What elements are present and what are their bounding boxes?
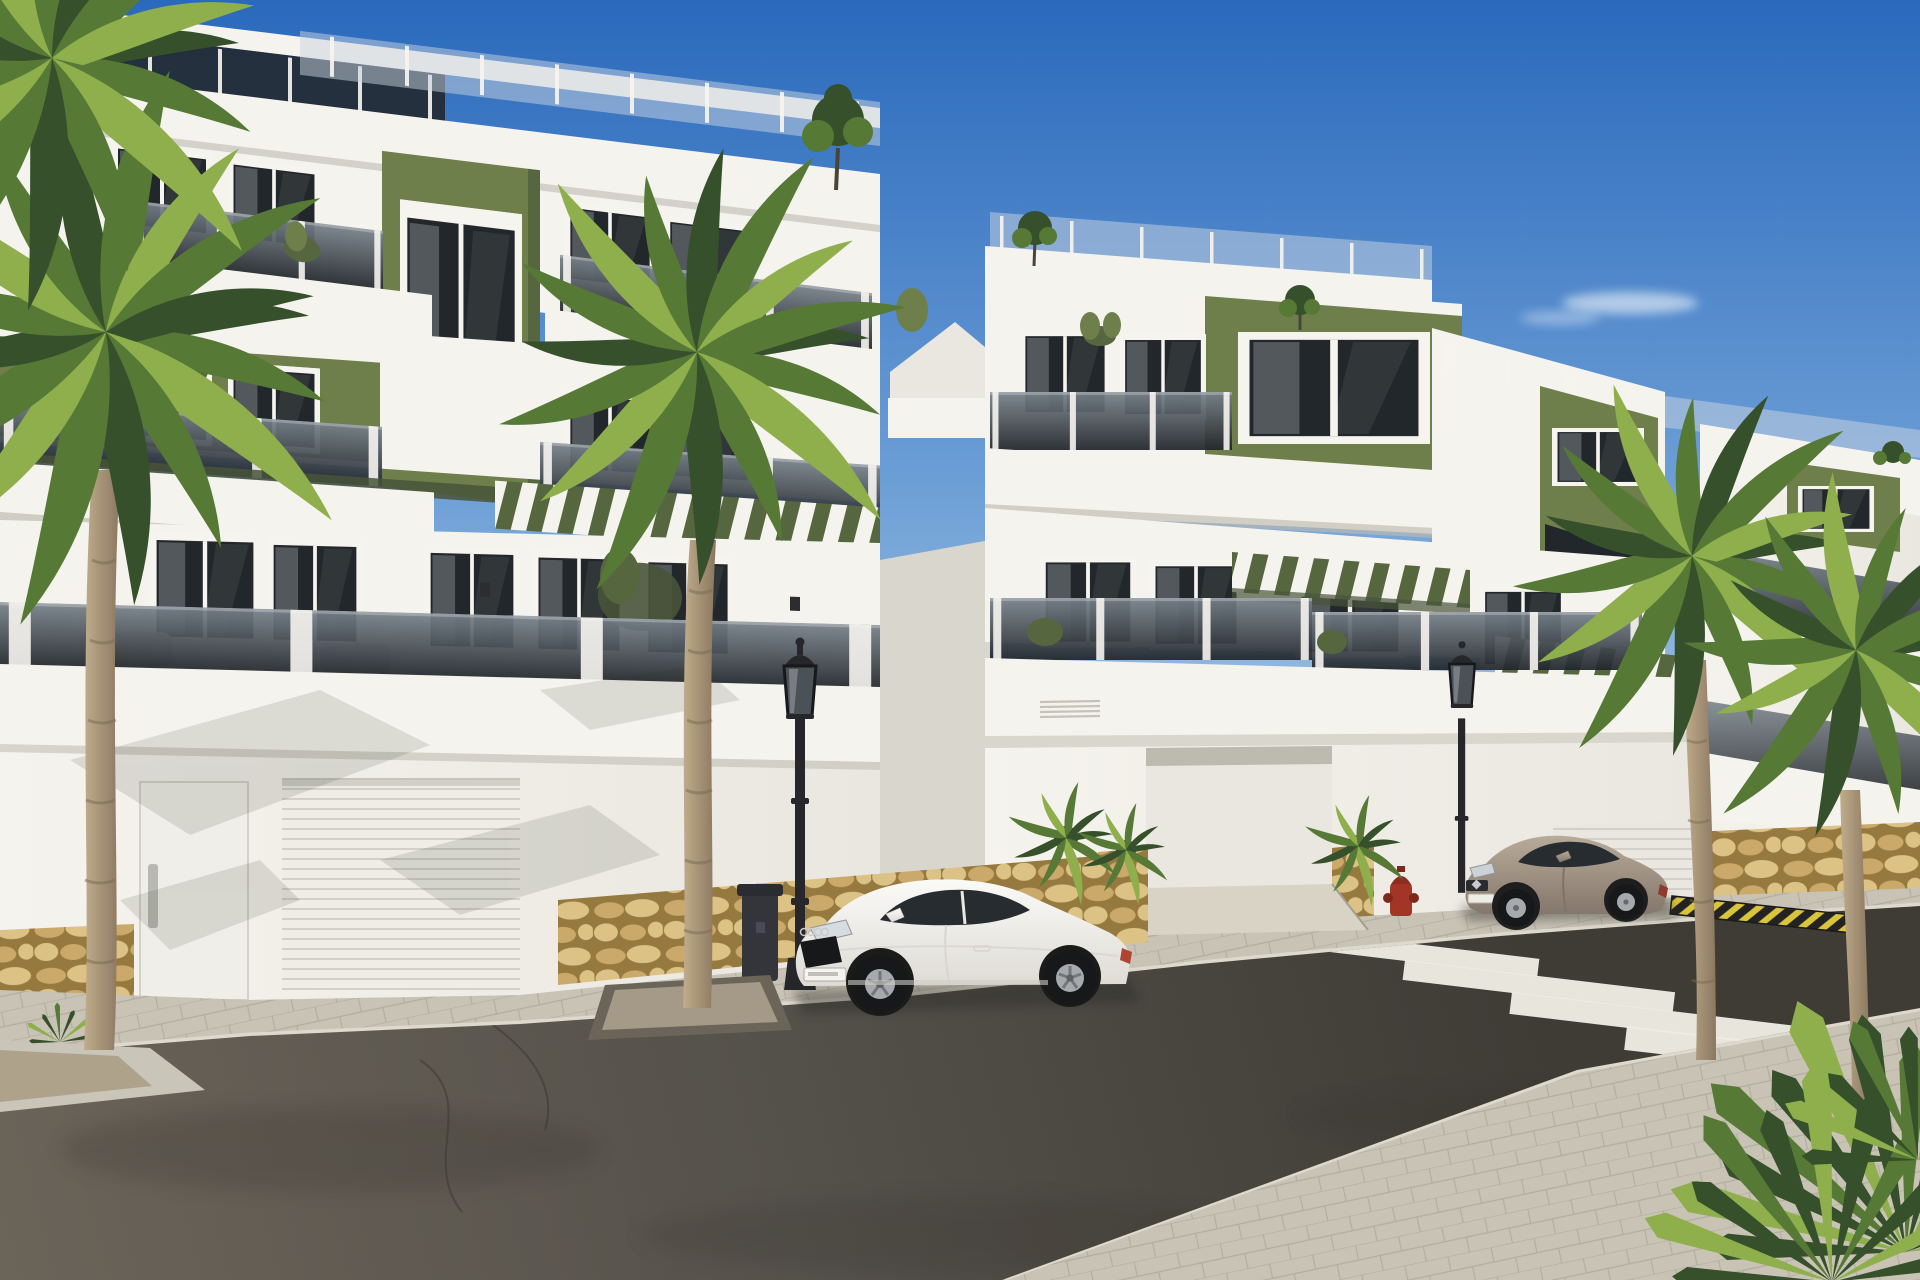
wall-sconce <box>790 597 800 611</box>
plate-text <box>808 972 838 976</box>
hub <box>1513 905 1519 911</box>
balcony-glass-railing <box>990 392 1232 450</box>
hydrant-cap <box>1397 866 1405 872</box>
pole-collar <box>791 798 809 804</box>
background-plant <box>896 288 928 332</box>
hydrant-nozzle <box>1409 893 1419 903</box>
street-scene-render: Sunny 3D architect's rendering of a mode… <box>0 0 1920 1280</box>
litter-bin <box>737 884 783 981</box>
sill-shadow <box>848 980 1048 985</box>
small-cloud-wisp <box>1520 311 1600 325</box>
license-plate <box>1468 894 1494 903</box>
hub <box>1623 899 1628 904</box>
hydrant-nozzle <box>1383 893 1393 903</box>
window <box>1238 332 1430 444</box>
road-stain <box>60 1108 600 1192</box>
hub <box>1066 974 1073 981</box>
driveway-lintel-shadow <box>1146 746 1332 766</box>
driveway-recess <box>1146 746 1332 890</box>
palm-trunk <box>683 540 716 1008</box>
small-cloud <box>1562 292 1698 314</box>
pole-collar <box>1455 816 1469 821</box>
scene-canvas: New-build apartment complex — sunny stre… <box>0 0 1920 1280</box>
lamp-pole <box>1458 718 1465 892</box>
bin-lid <box>737 884 783 896</box>
bin-plate <box>756 922 765 933</box>
wall-sconce <box>480 583 490 597</box>
pole-collar <box>791 898 809 905</box>
